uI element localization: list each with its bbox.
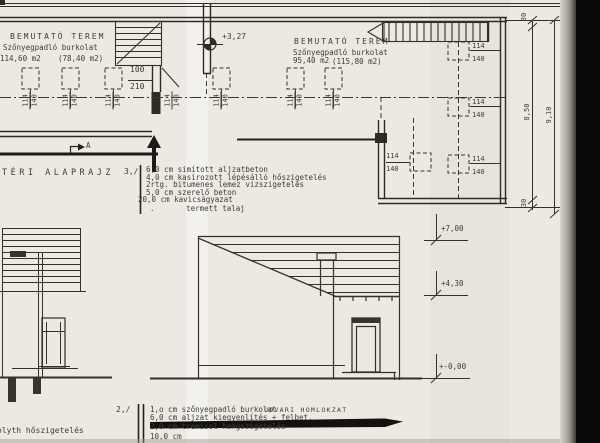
pillar-size-label: 114140: [22, 88, 39, 114]
section-line: [0, 140, 375, 155]
stair-left: [116, 22, 180, 88]
room-area-alt-left: (78,40 m2): [58, 55, 103, 63]
door-lintel: [352, 318, 380, 323]
floor-notes-index: 3,/: [124, 168, 138, 176]
pillar-size-label: 114140: [164, 88, 181, 114]
door-height-label: 210: [130, 83, 144, 91]
room-area-right: 95,40 m2: [293, 57, 329, 65]
scan-grey-band: [560, 0, 576, 443]
pillar-size-label: 114140: [105, 88, 122, 114]
slab-note-line: 6,0 cm aljzat kiegyenlítés + felbet.: [150, 414, 313, 422]
floor-note-line: 20,0 cm kavicságyazat: [138, 196, 233, 204]
room-area-left: 114,60 m2: [0, 55, 41, 63]
scan-bottom-edge: [0, 439, 575, 443]
level-ridge-label: +7,00: [441, 225, 464, 233]
level-eaves-label: +4,30: [441, 280, 464, 288]
elevation-left-foundation: [8, 251, 41, 402]
dim-outer-label: 9,10: [545, 102, 553, 128]
scan-black-band: [576, 0, 600, 443]
pillar-size-label: 114140: [62, 88, 79, 114]
pillar-size-label: 114140: [213, 88, 230, 114]
opening-size-label: 114140: [472, 40, 496, 66]
plan-title: TÉRI ALAPRAJZ: [2, 169, 114, 178]
sheet-border: [0, 4, 562, 7]
note-bracket-bars: [139, 165, 144, 443]
room-area-alt-right: (115,80 m2): [332, 58, 382, 66]
pillar-size-label: 114140: [287, 88, 304, 114]
slab-notes-index: 2,/: [116, 406, 130, 414]
floor-note-line: . termett talaj: [150, 205, 245, 213]
slab-note-line: 2,0 cm tremisol hangszigetelés: [150, 423, 285, 431]
level-markers: [420, 214, 470, 383]
opening-size-label: 114140: [472, 96, 496, 122]
level-ground-label: +-0,00: [439, 363, 466, 371]
room-name-right: BEMUTATÓ TEREM: [294, 38, 389, 46]
dim-wall-bottom-label: 30: [520, 190, 528, 216]
elevation-title: UDVARI HOMLOKZAT: [264, 407, 347, 414]
door-width-label: 100: [130, 66, 144, 74]
level-mark-label: +3,27: [222, 33, 246, 41]
drawing-linework: [0, 0, 600, 443]
room-name-left: BEMUTATÓ TEREM: [10, 33, 105, 41]
dim-wall-top-label: 30: [520, 4, 528, 30]
room-finish-left: Szőnyegpadló burkolat: [3, 44, 98, 52]
level-symbol: [197, 35, 223, 53]
opening-size-label: 114140: [386, 150, 410, 176]
elevation-center: [150, 236, 422, 380]
opening-size-label: 114140: [472, 153, 496, 179]
pillar-ticks: [31, 51, 501, 164]
scanned-architectural-drawing: BEMUTATÓ TEREM Szőnyegpadló burkolat 114…: [0, 0, 600, 443]
dim-inner-label: 8,50: [523, 99, 531, 125]
pillar-size-label: 114140: [325, 88, 342, 114]
elevation-left: [0, 228, 112, 378]
section-label: A: [86, 142, 91, 150]
edge-text-fragment: olyth hőszigetelés: [0, 427, 84, 435]
